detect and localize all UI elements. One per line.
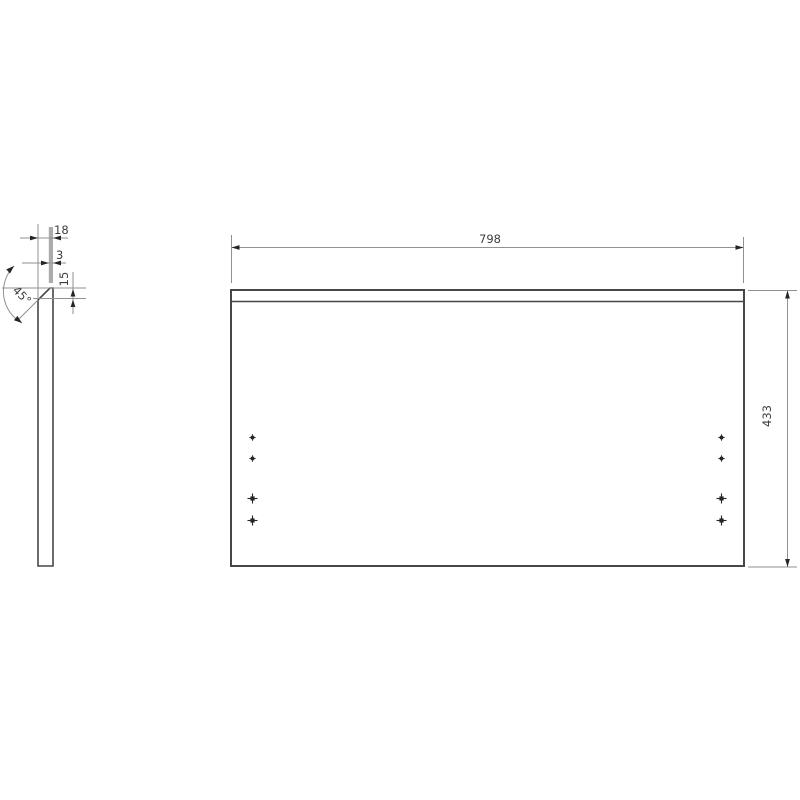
front-view: 798 433	[231, 232, 797, 567]
arrowhead	[6, 264, 16, 274]
arrowhead	[71, 300, 76, 308]
edge-flat-dimension-label: 3	[56, 248, 63, 262]
arrowhead	[785, 291, 790, 299]
panel-front-outline	[231, 290, 744, 566]
arrowhead	[71, 289, 76, 297]
thickness-dimension-label: 18	[54, 223, 69, 237]
drawing-canvas: 18 3 15 45° 798 433	[0, 0, 800, 800]
arrowhead	[232, 245, 240, 250]
edge-band-strip	[49, 227, 53, 283]
height-dimension-label: 433	[760, 405, 774, 427]
width-dimension-label: 798	[479, 232, 501, 246]
arrowhead	[41, 261, 49, 266]
arrowhead	[30, 236, 38, 241]
arrowhead	[736, 245, 744, 250]
panel-profile-outline	[38, 288, 53, 566]
chamfer-angle-label: 45°	[10, 283, 34, 307]
technical-drawing: 18 3 15 45° 798 433	[0, 0, 800, 800]
arrowhead	[785, 559, 790, 567]
arrowhead	[14, 316, 24, 325]
side-view: 18 3 15 45°	[2, 223, 86, 566]
chamfer-depth-dimension-label: 15	[57, 272, 71, 287]
